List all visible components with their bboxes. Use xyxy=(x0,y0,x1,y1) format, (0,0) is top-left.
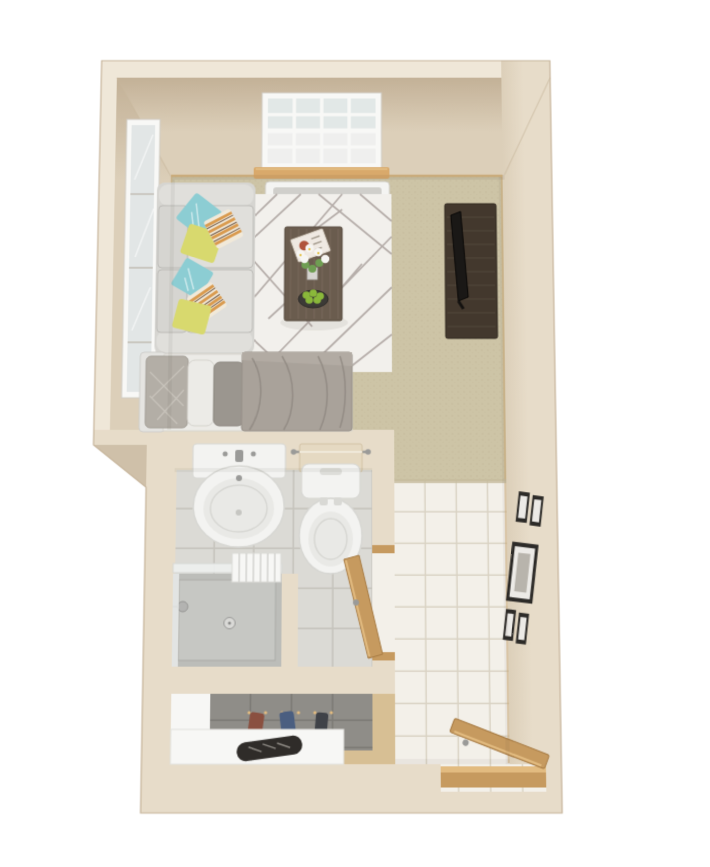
bathroom-door-frame-top xyxy=(372,545,394,553)
shower-head xyxy=(178,601,188,611)
entry-tile-floor xyxy=(394,481,509,764)
towel-bar-cap-left xyxy=(291,449,297,455)
toilet-hinge-right xyxy=(334,497,342,505)
shadow-top-wall xyxy=(171,175,505,180)
floor-plan-render xyxy=(0,14,710,867)
coffee-table xyxy=(280,227,348,331)
sink-drain xyxy=(236,509,242,515)
window-unit xyxy=(254,93,390,179)
bathroom-closet-wall xyxy=(143,667,395,694)
closet-doorway xyxy=(372,694,395,764)
towel-bar-cap-right xyxy=(365,449,371,455)
sink-handle-right xyxy=(251,451,256,456)
shower-towels xyxy=(232,553,281,582)
toilet-hinge-left xyxy=(320,497,328,505)
sink-spout xyxy=(236,475,242,481)
sink-faucet xyxy=(235,450,243,462)
bed-pillow-white xyxy=(187,360,214,426)
pedestal-sink xyxy=(192,444,286,547)
shadow-bottom-wall xyxy=(395,759,510,764)
entry-door-threshold-highlight xyxy=(441,766,546,772)
bed-pillow-gray xyxy=(213,362,244,426)
shower xyxy=(172,553,282,666)
floor-transition-strip xyxy=(394,479,506,483)
tv-stand xyxy=(445,204,498,339)
top-wall xyxy=(101,61,550,78)
shadow-bathroom-wall xyxy=(175,468,373,472)
sink-basin xyxy=(203,478,274,539)
bed-pillow-patterned xyxy=(145,356,188,428)
shower-partition-wall xyxy=(281,574,298,667)
closet xyxy=(170,694,372,764)
bathroom-door-knob xyxy=(353,599,359,605)
